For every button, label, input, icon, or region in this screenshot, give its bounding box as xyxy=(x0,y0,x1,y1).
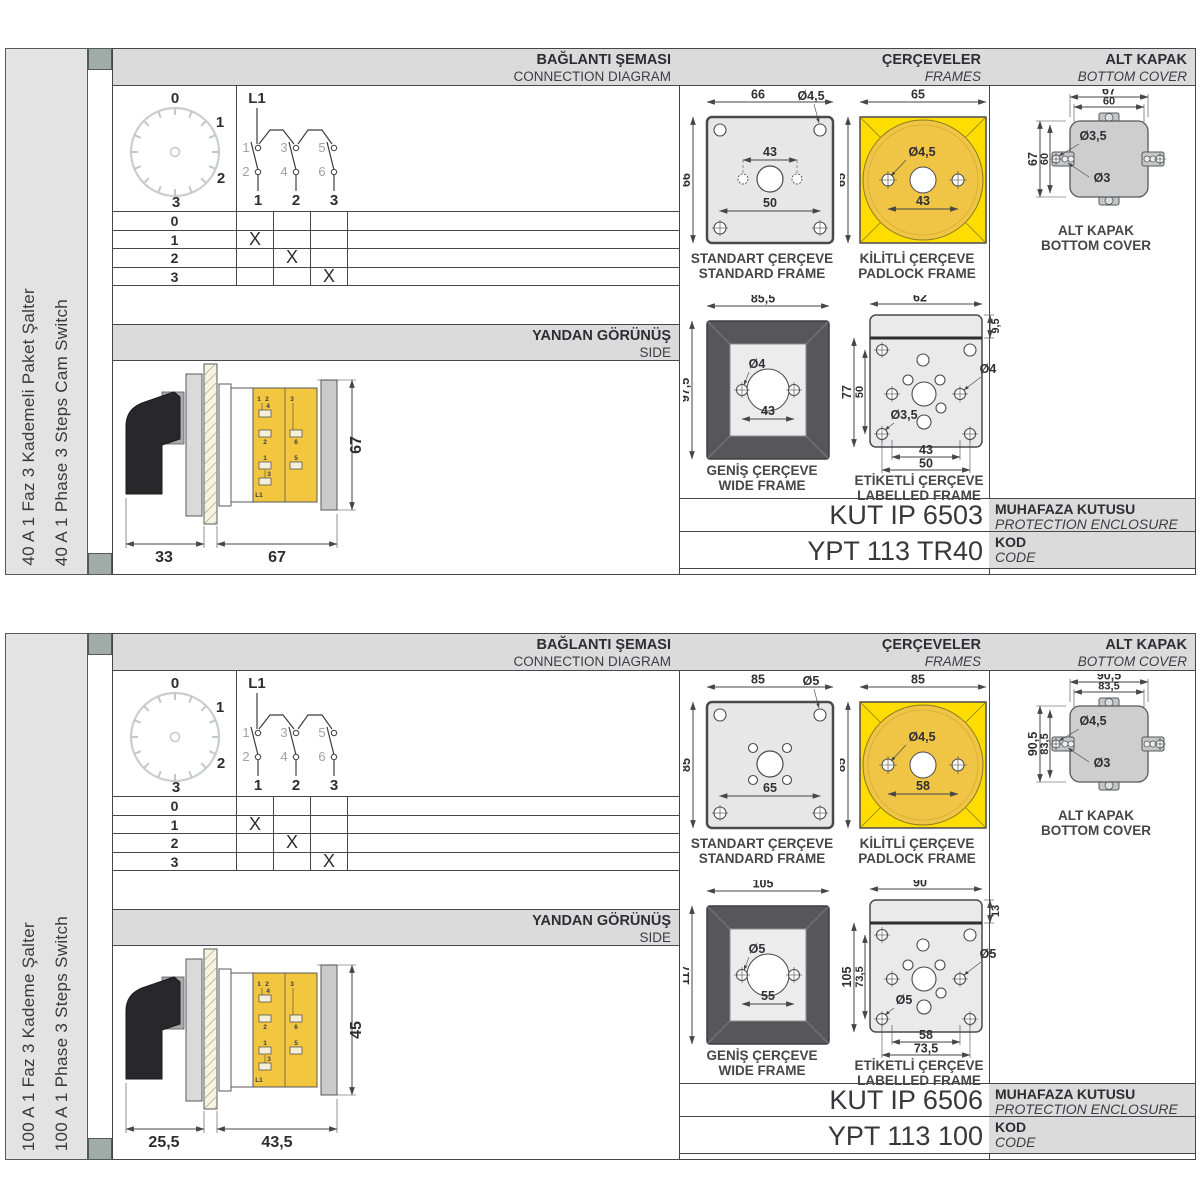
cover-height-dim: 67 xyxy=(1026,152,1040,166)
side-terminal-label: L1 xyxy=(255,492,263,499)
terminal-1: 1 xyxy=(242,725,249,740)
padlock-height-dim: 85 xyxy=(840,758,848,772)
terminal-4: 4 xyxy=(280,749,287,764)
mark-cell xyxy=(311,834,348,853)
enclosure-label-tr: MUHAFAZA KUTUSU xyxy=(995,501,1195,517)
standard-frame-caption: STANDART ÇERÇEVE STANDARD FRAME xyxy=(688,251,836,281)
side-terminal-label: 3 xyxy=(267,1056,271,1063)
switch-dial-drawing: 0 1 2 3 xyxy=(113,671,237,796)
mark-cell xyxy=(237,268,274,287)
mark-cell: X xyxy=(274,249,311,268)
cover-hole-a-dim: Ø4,5 xyxy=(1079,714,1106,728)
side-terminal-label: 3 xyxy=(290,981,294,988)
labelled-width-dim: 62 xyxy=(913,295,927,305)
wide-frame-caption: GENİŞ ÇERÇEVE WIDE FRAME xyxy=(688,463,836,493)
caption-en: BOTTOM COVER xyxy=(1001,238,1191,253)
header-cover-en: BOTTOM COVER xyxy=(989,69,1187,84)
product-code: YPT 113 TR40 xyxy=(679,536,983,566)
switch-position-table: 0 1 X 2 X 3 X xyxy=(113,211,679,286)
dial-position-1: 1 xyxy=(216,699,224,716)
binder-clip-bottom-icon xyxy=(88,553,112,575)
header-frames: ÇERÇEVELER FRAMES xyxy=(679,634,989,671)
product-block: 40 A 1 Faz 3 Kademeli Paket Şalter 40 A … xyxy=(0,48,1200,575)
product-title-tr: 100 A 1 Faz 3 Kademe Şalter xyxy=(19,922,39,1151)
standard-hole-dim: Ø5 xyxy=(803,674,820,688)
binder-clip-top-icon xyxy=(88,633,112,655)
header-connection-en: CONNECTION DIAGRAM xyxy=(113,69,671,84)
pole-2: 2 xyxy=(292,777,300,794)
cover-height-dim: 90,5 xyxy=(1026,732,1040,756)
caption-tr: ETİKETLİ ÇERÇEVE xyxy=(843,473,995,488)
terminal-1: 1 xyxy=(242,140,249,155)
side-terminal-label: 6 xyxy=(294,439,298,446)
header-cover-tr: ALT KAPAK xyxy=(989,637,1187,654)
pole-3: 3 xyxy=(330,192,338,209)
dial-position-1: 1 xyxy=(216,114,224,131)
caption-tr: GENİŞ ÇERÇEVE xyxy=(688,1048,836,1063)
row-label: 3 xyxy=(113,268,237,287)
product-code: YPT 113 100 xyxy=(679,1121,983,1151)
pole-1: 1 xyxy=(254,777,262,794)
side-terminal-label: 2 xyxy=(263,439,267,446)
contact-diagram: L1 1 2 3 4 5 6 1 2 3 xyxy=(237,671,437,796)
labelled-strip-dim: 9,5 xyxy=(990,318,1002,333)
standard-hole-dim: Ø4,5 xyxy=(797,89,824,103)
wide-height-dim: 97,5 xyxy=(683,378,692,402)
padlock-frame-caption: KİLİTLİ ÇERÇEVE PADLOCK FRAME xyxy=(843,836,991,866)
labelled-hole-side-dim: Ø5 xyxy=(980,947,997,961)
standard-frame-caption: STANDART ÇERÇEVE STANDARD FRAME xyxy=(688,836,836,866)
empty-cell xyxy=(348,212,679,231)
divider xyxy=(679,568,1195,569)
empty-cell xyxy=(348,797,679,816)
header-side-en: SIDE xyxy=(113,345,671,360)
labelled-height-dim: 105 xyxy=(840,967,854,988)
wide-width-dim: 85,5 xyxy=(751,295,775,306)
binder-clip-top-icon xyxy=(88,48,112,70)
side-terminal-label: 1 xyxy=(257,981,261,988)
enclosure-code: KUT IP 6503 xyxy=(679,501,983,529)
side-view-drawing: 1 2 4 2 1 3 L1 3 6 5 67 33 67 xyxy=(118,362,368,567)
caption-en: WIDE FRAME xyxy=(688,478,836,493)
header-bottom-cover: ALT KAPAK BOTTOM COVER xyxy=(989,49,1195,86)
side-terminal-label: 4 xyxy=(266,988,270,995)
empty-cell xyxy=(348,231,679,250)
mark-cell xyxy=(311,212,348,231)
code-label-tr: KOD xyxy=(995,534,1195,550)
cover-hole-a-dim: Ø3,5 xyxy=(1079,129,1106,143)
body-depth-dim: 43,5 xyxy=(261,1134,292,1151)
header-side-en: SIDE xyxy=(113,930,671,945)
header-frames: ÇERÇEVELER FRAMES xyxy=(679,49,989,86)
body-depth-dim: 67 xyxy=(268,549,286,566)
terminal-5: 5 xyxy=(318,140,325,155)
empty-cell xyxy=(348,268,679,287)
padlock-frame-drawing: 65 65 Ø4,5 43 xyxy=(840,89,992,254)
product-title-en: 40 A 1 Phase 3 Steps Cam Switch xyxy=(52,299,72,566)
side-terminal-label: 2 xyxy=(265,981,269,988)
row-label: 3 xyxy=(113,853,237,872)
padlock-inner-dim: 43 xyxy=(916,194,930,208)
header-connection-tr: BAĞLANTI ŞEMASI xyxy=(113,52,671,69)
padlock-inner-dim: 58 xyxy=(916,779,930,793)
side-terminal-label: 1 xyxy=(263,455,267,462)
header-connection-diagram: BAĞLANTI ŞEMASI CONNECTION DIAGRAM xyxy=(113,49,679,86)
terminal-2: 2 xyxy=(242,164,249,179)
header-connection-en: CONNECTION DIAGRAM xyxy=(113,654,671,669)
side-terminal-label: 2 xyxy=(263,1024,267,1031)
labelled-width-dim: 90 xyxy=(913,880,927,890)
side-terminal-label: 2 xyxy=(265,396,269,403)
wide-inner-dim: 43 xyxy=(761,404,775,418)
empty-cell xyxy=(348,249,679,268)
standard-bottom-dim: 65 xyxy=(763,781,777,795)
switch-dial-drawing: 0 1 2 3 xyxy=(113,86,237,211)
caption-en: STANDARD FRAME xyxy=(688,266,836,281)
terminal-2: 2 xyxy=(242,749,249,764)
caption-en: PADLOCK FRAME xyxy=(843,266,991,281)
labelled-height-inner-dim: 73,5 xyxy=(854,966,866,987)
dial-position-0: 0 xyxy=(171,675,179,692)
mark-cell: X xyxy=(311,853,348,872)
side-terminal-label: 5 xyxy=(294,455,298,462)
padlock-height-dim: 65 xyxy=(840,173,848,187)
padlock-width-dim: 65 xyxy=(911,89,925,102)
labelled-bottom-dim: 73,5 xyxy=(914,1042,938,1056)
caption-tr: ALT KAPAK xyxy=(1001,808,1191,823)
caption-tr: KİLİTLİ ÇERÇEVE xyxy=(843,836,991,851)
header-bottom-cover: ALT KAPAK BOTTOM COVER xyxy=(989,634,1195,671)
column-divider-frames xyxy=(679,49,680,574)
caption-tr: STANDART ÇERÇEVE xyxy=(688,251,836,266)
pole-3: 3 xyxy=(330,777,338,794)
labelled-frame-drawing: 62 9,5 Ø4 Ø3,5 77 50 xyxy=(840,295,1002,475)
header-side-tr: YANDAN GÖRÜNÜŞ xyxy=(113,913,671,930)
enclosure-label-en: PROTECTION ENCLOSURE xyxy=(995,1102,1195,1117)
mark-cell xyxy=(237,797,274,816)
wide-inner-dim: 55 xyxy=(761,989,775,1003)
feed-label: L1 xyxy=(248,675,266,692)
code-label-en: CODE xyxy=(995,1135,1195,1150)
bottom-cover-caption: ALT KAPAK BOTTOM COVER xyxy=(1001,223,1191,253)
product-title-panel: 40 A 1 Faz 3 Kademeli Paket Şalter 40 A … xyxy=(5,48,88,575)
header-frames-tr: ÇERÇEVELER xyxy=(679,637,981,654)
side-terminal-label: 1 xyxy=(263,1040,267,1047)
row-label: 1 xyxy=(113,231,237,250)
header-side-view: YANDAN GÖRÜNÜŞ SIDE xyxy=(113,324,679,361)
terminal-3: 3 xyxy=(280,725,287,740)
side-terminal-label: 3 xyxy=(267,471,271,478)
cover-width-inner-dim: 83,5 xyxy=(1098,681,1119,693)
mark-cell xyxy=(274,212,311,231)
product-title-tr: 40 A 1 Faz 3 Kademeli Paket Şalter xyxy=(19,288,39,566)
mark-cell xyxy=(274,797,311,816)
caption-en: PADLOCK FRAME xyxy=(843,851,991,866)
dial-position-2: 2 xyxy=(217,755,225,772)
labelled-hole-side-dim: Ø4 xyxy=(980,362,997,376)
mark-cell xyxy=(274,853,311,872)
mark-cell xyxy=(311,231,348,250)
mark-cell: X xyxy=(274,834,311,853)
row-label: 1 xyxy=(113,816,237,835)
dial-position-2: 2 xyxy=(217,170,225,187)
empty-cell xyxy=(348,853,679,872)
row-label: 0 xyxy=(113,797,237,816)
bottom-cover-drawing: 90,5 83,5 90,5 83,5 Ø4,5 Ø3 xyxy=(1006,674,1196,806)
labelled-frame-drawing: 90 13 Ø5 Ø5 105 73,5 xyxy=(840,880,1002,1060)
terminal-5: 5 xyxy=(318,725,325,740)
caption-tr: GENİŞ ÇERÇEVE xyxy=(688,463,836,478)
bottom-cover-caption: ALT KAPAK BOTTOM COVER xyxy=(1001,808,1191,838)
mark-cell xyxy=(237,249,274,268)
empty-cell xyxy=(348,816,679,835)
binder-strip xyxy=(88,633,112,1160)
wide-frame-drawing: 85,5 97,5 Ø4 43 xyxy=(683,295,841,467)
wide-frame-caption: GENİŞ ÇERÇEVE WIDE FRAME xyxy=(688,1048,836,1078)
mark-cell: X xyxy=(311,268,348,287)
binder-strip xyxy=(88,48,112,575)
dial-position-3: 3 xyxy=(172,779,180,796)
enclosure-note: MUHAFAZA KUTUSU PROTECTION ENCLOSURE xyxy=(989,1084,1195,1116)
wide-frame-drawing: 105 117 Ø5 55 xyxy=(683,880,841,1052)
header-cover-en: BOTTOM COVER xyxy=(989,654,1187,669)
side-terminal-label: 1 xyxy=(257,396,261,403)
enclosure-label-tr: MUHAFAZA KUTUSU xyxy=(995,1086,1195,1102)
row-label: 2 xyxy=(113,834,237,853)
code-label-tr: KOD xyxy=(995,1119,1195,1135)
standard-inner-dim: 43 xyxy=(763,145,777,159)
header-side-tr: YANDAN GÖRÜNÜŞ xyxy=(113,328,671,345)
standard-frame-drawing: 43 50 66 Ø4,5 66 xyxy=(683,89,841,254)
padlock-hole-dim: Ø4,5 xyxy=(908,730,935,744)
wide-height-dim: 117 xyxy=(683,965,692,985)
caption-tr: KİLİTLİ ÇERÇEVE xyxy=(843,251,991,266)
caption-en: STANDARD FRAME xyxy=(688,851,836,866)
row-label: 2 xyxy=(113,249,237,268)
mark-cell xyxy=(311,249,348,268)
mark-cell: X xyxy=(237,231,274,250)
terminal-3: 3 xyxy=(280,140,287,155)
pole-2: 2 xyxy=(292,192,300,209)
mark-cell xyxy=(274,268,311,287)
mark-cell xyxy=(237,212,274,231)
code-note: KOD CODE xyxy=(989,532,1195,568)
header-connection-tr: BAĞLANTI ŞEMASI xyxy=(113,637,671,654)
caption-tr: ALT KAPAK xyxy=(1001,223,1191,238)
mark-cell xyxy=(237,834,274,853)
standard-width-dim: 85 xyxy=(751,674,765,687)
enclosure-label-en: PROTECTION ENCLOSURE xyxy=(995,517,1195,532)
header-cover-tr: ALT KAPAK xyxy=(989,52,1187,69)
padlock-hole-dim: Ø4,5 xyxy=(908,145,935,159)
header-frames-en: FRAMES xyxy=(679,69,981,84)
side-terminal-label: 4 xyxy=(266,403,270,410)
labelled-inner-dim: 43 xyxy=(919,443,933,457)
labelled-hole-corner-dim: Ø3,5 xyxy=(890,408,917,422)
divider xyxy=(679,1153,1195,1154)
cover-hole-b-dim: Ø3 xyxy=(1094,171,1111,185)
product-title-en: 100 A 1 Phase 3 Steps Switch xyxy=(52,916,72,1151)
padlock-width-dim: 85 xyxy=(911,674,925,687)
mark-cell xyxy=(311,816,348,835)
switch-position-table: 0 1 X 2 X 3 X xyxy=(113,796,679,871)
product-title-panel: 100 A 1 Faz 3 Kademe Şalter 100 A 1 Phas… xyxy=(5,633,88,1160)
mark-cell xyxy=(237,853,274,872)
datasheet-panel: BAĞLANTI ŞEMASI CONNECTION DIAGRAM ÇERÇE… xyxy=(112,48,1196,575)
mounting-panel-hatch xyxy=(204,949,217,1109)
enclosure-note: MUHAFAZA KUTUSU PROTECTION ENCLOSURE xyxy=(989,499,1195,531)
caption-en: WIDE FRAME xyxy=(688,1063,836,1078)
labelled-height-dim: 77 xyxy=(840,385,854,399)
side-terminal-label: L1 xyxy=(255,1077,263,1084)
side-height-dim: 67 xyxy=(348,436,365,454)
labelled-strip-dim: 13 xyxy=(990,905,1002,917)
header-connection-diagram: BAĞLANTI ŞEMASI CONNECTION DIAGRAM xyxy=(113,634,679,671)
side-terminal-label: 5 xyxy=(294,1040,298,1047)
side-terminal-label: 6 xyxy=(294,1024,298,1031)
binder-clip-bottom-icon xyxy=(88,1138,112,1160)
standard-width-dim: 66 xyxy=(751,89,765,102)
side-height-dim: 45 xyxy=(348,1021,365,1039)
padlock-frame-caption: KİLİTLİ ÇERÇEVE PADLOCK FRAME xyxy=(843,251,991,281)
wide-hole-dim: Ø5 xyxy=(749,942,766,956)
column-divider-frames xyxy=(679,634,680,1159)
labelled-bottom-dim: 50 xyxy=(919,457,933,471)
header-frames-en: FRAMES xyxy=(679,654,981,669)
side-terminal-label: 3 xyxy=(290,396,294,403)
datasheet-panel: BAĞLANTI ŞEMASI CONNECTION DIAGRAM ÇERÇE… xyxy=(112,633,1196,1160)
standard-height-dim: 85 xyxy=(683,758,693,772)
feed-label: L1 xyxy=(248,90,266,107)
pole-1: 1 xyxy=(254,192,262,209)
labelled-inner-dim: 58 xyxy=(919,1028,933,1042)
terminal-6: 6 xyxy=(318,749,325,764)
labelled-height-inner-dim: 50 xyxy=(854,386,866,398)
contact-diagram: L1 1 2 3 4 5 6 1 2 3 xyxy=(237,86,437,211)
wide-width-dim: 105 xyxy=(753,880,774,891)
mark-cell: X xyxy=(237,816,274,835)
enclosure-code: KUT IP 6506 xyxy=(679,1086,983,1114)
standard-height-dim: 66 xyxy=(683,173,693,187)
terminal-4: 4 xyxy=(280,164,287,179)
dial-position-0: 0 xyxy=(171,90,179,107)
row-label: 0 xyxy=(113,212,237,231)
terminal-6: 6 xyxy=(318,164,325,179)
cover-height-inner-dim: 60 xyxy=(1039,153,1051,165)
code-note: KOD CODE xyxy=(989,1117,1195,1153)
cover-width-inner-dim: 60 xyxy=(1103,96,1115,108)
side-view-drawing: 1 2 4 2 1 3 L1 3 6 5 45 25,5 43,5 xyxy=(118,947,368,1152)
cover-height-inner-dim: 83,5 xyxy=(1039,733,1051,754)
labelled-hole-corner-dim: Ø5 xyxy=(896,993,913,1007)
cover-hole-b-dim: Ø3 xyxy=(1094,756,1111,770)
product-block: 100 A 1 Faz 3 Kademe Şalter 100 A 1 Phas… xyxy=(0,633,1200,1160)
caption-tr: ETİKETLİ ÇERÇEVE xyxy=(843,1058,995,1073)
bottom-cover-drawing: 67 60 67 60 Ø3,5 Ø3 xyxy=(1006,89,1196,221)
empty-cell xyxy=(348,834,679,853)
handle-depth-dim: 33 xyxy=(155,549,173,566)
caption-en: BOTTOM COVER xyxy=(1001,823,1191,838)
caption-tr: STANDART ÇERÇEVE xyxy=(688,836,836,851)
mark-cell xyxy=(311,797,348,816)
standard-frame-drawing: 65 85 Ø5 85 xyxy=(683,674,841,839)
header-side-view: YANDAN GÖRÜNÜŞ SIDE xyxy=(113,909,679,946)
handle-depth-dim: 25,5 xyxy=(148,1134,179,1151)
code-label-en: CODE xyxy=(995,550,1195,565)
standard-bottom-dim: 50 xyxy=(763,196,777,210)
mounting-panel-hatch xyxy=(204,364,217,524)
padlock-frame-drawing: 85 85 Ø4,5 58 xyxy=(840,674,992,839)
dial-position-3: 3 xyxy=(172,194,180,211)
wide-hole-dim: Ø4 xyxy=(749,357,766,371)
header-frames-tr: ÇERÇEVELER xyxy=(679,52,981,69)
